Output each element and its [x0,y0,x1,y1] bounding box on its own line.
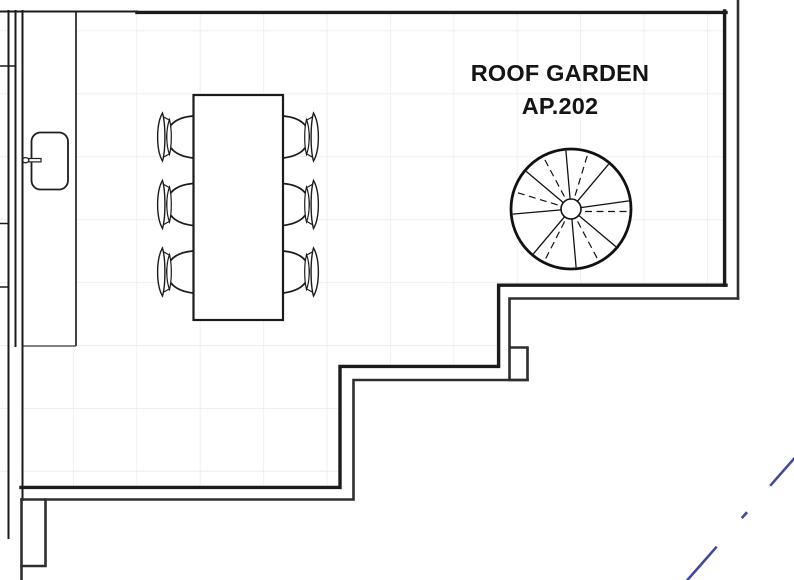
floor-tile-grid [0,12,794,580]
stepped-wall-outer-upper [510,299,739,381]
floor-plan-drawing: ROOF GARDEN AP.202 [0,0,794,580]
room-label-line1: ROOF GARDEN [471,60,649,86]
boundary-annotation-dashed-line [687,445,794,580]
roof-garden-floor [0,12,794,580]
bottom-left-step [22,500,46,567]
dining-set [158,95,319,320]
room-label-line2: AP.202 [522,93,599,119]
floor-plan-canvas: ROOF GARDEN AP.202 [0,0,794,580]
dining-table [194,95,284,320]
spiral-staircase-newel-post [561,199,581,219]
left-margin-grid [0,13,9,533]
spiral-staircase [511,149,631,269]
